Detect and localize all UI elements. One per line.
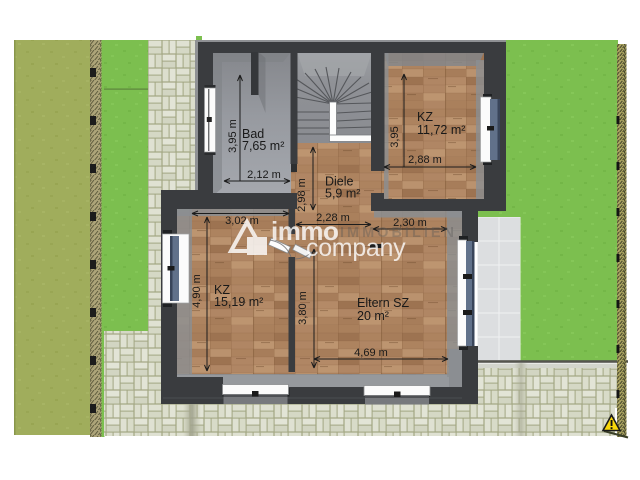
svg-text:3,95: 3,95 xyxy=(389,126,401,147)
svg-text:3,02 m: 3,02 m xyxy=(225,215,259,227)
svg-text:2,98 m: 2,98 m xyxy=(296,178,308,212)
svg-text:company: company xyxy=(306,234,406,262)
svg-text:20 m²: 20 m² xyxy=(357,309,389,323)
svg-text:2,12 m: 2,12 m xyxy=(247,169,281,181)
svg-text:7,65 m²: 7,65 m² xyxy=(242,139,284,153)
svg-text:3,95 m: 3,95 m xyxy=(227,119,239,153)
svg-text:Eltern SZ: Eltern SZ xyxy=(357,296,409,310)
svg-text:4,90 m: 4,90 m xyxy=(191,274,203,308)
svg-text:4,69 m: 4,69 m xyxy=(354,347,388,359)
svg-text:KZ: KZ xyxy=(417,110,433,124)
svg-text:5,9 m²: 5,9 m² xyxy=(325,187,360,201)
svg-text:3,80 m: 3,80 m xyxy=(297,291,309,325)
svg-text:11,72 m²: 11,72 m² xyxy=(417,123,465,137)
svg-text:2,88 m: 2,88 m xyxy=(408,154,442,166)
svg-text:15,19 m²: 15,19 m² xyxy=(214,295,263,309)
